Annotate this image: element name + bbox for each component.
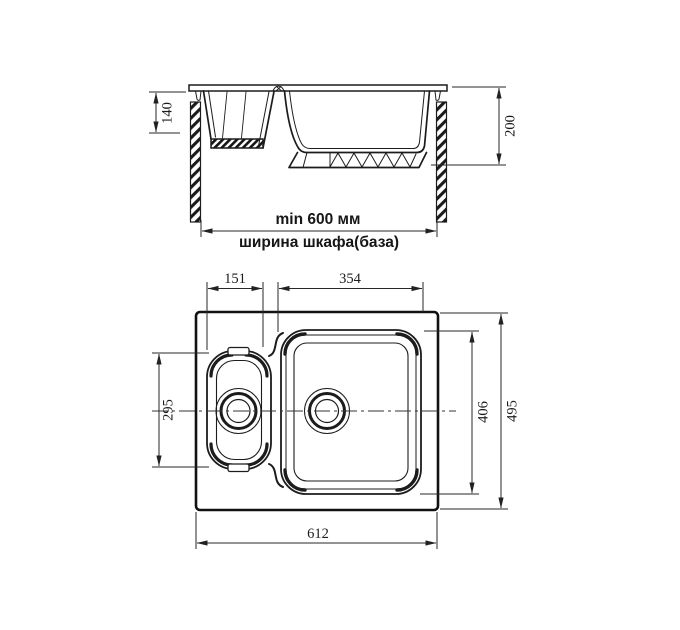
large-bowl-plan — [281, 330, 421, 494]
dim-small-bowl-width: 151 — [224, 271, 246, 287]
cabinet-wall-right — [437, 102, 447, 222]
dim-large-bowl-length: 406 — [475, 401, 491, 423]
dim-overall-depth: 200 — [502, 115, 518, 137]
dim-small-bowl-depth: 140 — [159, 102, 175, 124]
min-cabinet-width-label: min 600 мм — [276, 211, 361, 228]
cabinet-width-label: ширина шкафа(база) — [239, 234, 399, 251]
dim-small-bowl-length: 295 — [160, 399, 176, 421]
dim-overall-width: 612 — [307, 526, 329, 542]
sink-flange — [189, 85, 447, 91]
small-bowl-plan — [207, 348, 271, 472]
cabinet-wall-left — [191, 102, 201, 222]
dim-large-bowl-width: 354 — [339, 271, 362, 287]
small-bowl-tab-top — [228, 348, 249, 356]
sink-technical-drawing: 140 200 min 600 мм ширина шкафа(база) — [0, 0, 680, 630]
dim-overall-length: 495 — [504, 400, 520, 422]
small-bowl-bottom — [211, 139, 263, 148]
large-bowl-outer-rim — [281, 330, 421, 494]
small-bowl-tab-bottom — [228, 464, 249, 472]
